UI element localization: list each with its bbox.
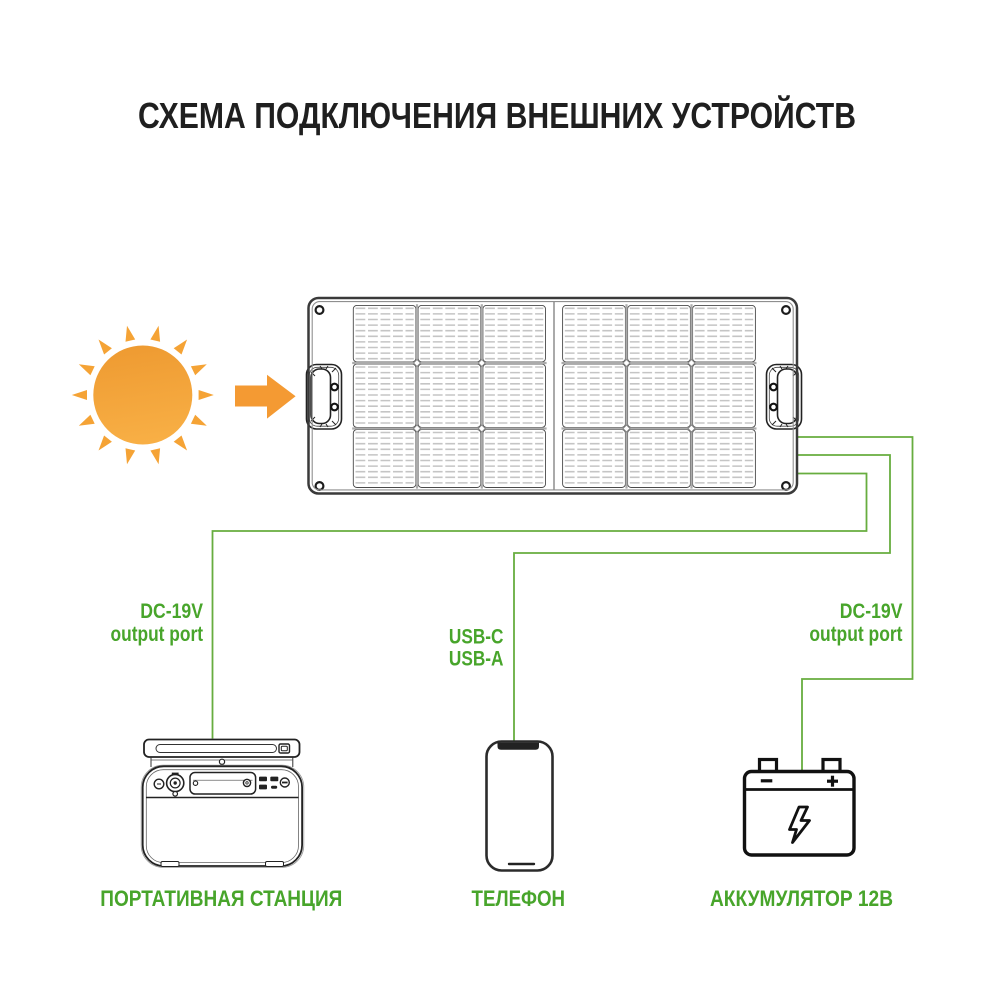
svg-text:output port: output port <box>809 623 902 646</box>
svg-text:ПОРТАТИВНАЯ СТАНЦИЯ: ПОРТАТИВНАЯ СТАНЦИЯ <box>100 886 342 911</box>
svg-text:ТЕЛЕФОН: ТЕЛЕФОН <box>472 886 566 911</box>
svg-text:output port: output port <box>111 623 204 646</box>
svg-text:АККУМУЛЯТОР 12В: АККУМУЛЯТОР 12В <box>710 886 893 911</box>
svg-text:DC-19V: DC-19V <box>140 600 203 623</box>
svg-text:СХЕМА ПОДКЛЮЧЕНИЯ ВНЕШНИХ УСТР: СХЕМА ПОДКЛЮЧЕНИЯ ВНЕШНИХ УСТРОЙСТВ <box>138 94 856 136</box>
svg-text:DC-19V: DC-19V <box>840 600 903 623</box>
svg-text:USB-A: USB-A <box>449 648 504 671</box>
svg-text:USB-C: USB-C <box>449 626 504 649</box>
